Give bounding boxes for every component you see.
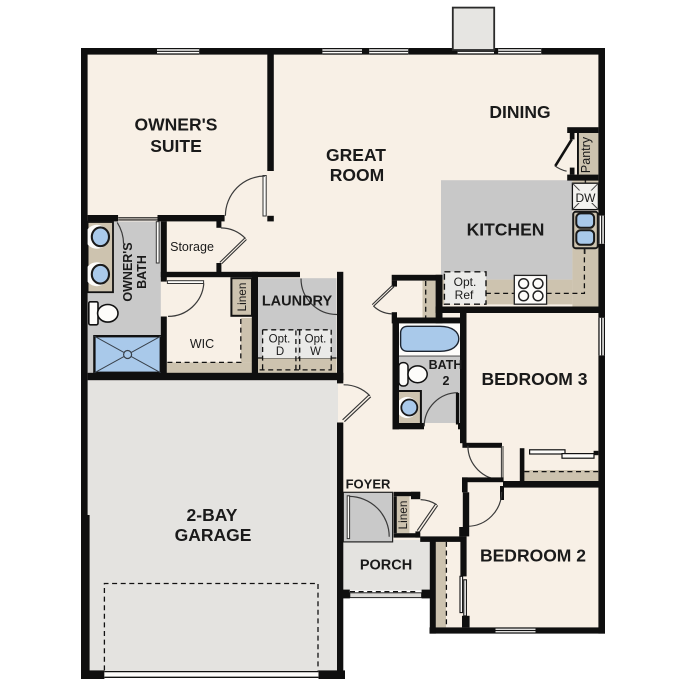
- svg-text:BATH: BATH: [429, 358, 463, 372]
- svg-text:Ref: Ref: [455, 288, 474, 302]
- svg-text:OWNER'S: OWNER'S: [121, 242, 135, 301]
- svg-text:GARAGE: GARAGE: [175, 525, 252, 545]
- svg-text:GREAT: GREAT: [326, 145, 386, 165]
- svg-text:D: D: [276, 346, 284, 358]
- svg-text:BATH: BATH: [135, 255, 149, 289]
- svg-text:SUITE: SUITE: [150, 136, 202, 156]
- svg-text:OWNER'S: OWNER'S: [135, 115, 218, 135]
- svg-text:FOYER: FOYER: [346, 477, 391, 492]
- svg-text:KITCHEN: KITCHEN: [467, 219, 545, 239]
- svg-text:Storage: Storage: [170, 240, 214, 254]
- svg-text:DW: DW: [576, 191, 597, 205]
- svg-text:2-BAY: 2-BAY: [187, 505, 238, 525]
- svg-text:ROOM: ROOM: [330, 165, 384, 185]
- svg-text:WIC: WIC: [190, 337, 214, 351]
- svg-text:Opt.: Opt.: [454, 275, 477, 289]
- svg-text:BEDROOM 3: BEDROOM 3: [482, 369, 588, 389]
- svg-text:Linen: Linen: [235, 283, 249, 312]
- svg-text:PORCH: PORCH: [360, 558, 412, 574]
- svg-text:DINING: DINING: [489, 102, 550, 122]
- svg-text:Opt.: Opt.: [305, 334, 327, 346]
- svg-text:Opt.: Opt.: [269, 334, 291, 346]
- svg-text:Pantry: Pantry: [579, 136, 593, 173]
- svg-text:W: W: [310, 346, 321, 358]
- svg-text:LAUNDRY: LAUNDRY: [262, 294, 333, 310]
- svg-text:2: 2: [443, 374, 450, 388]
- svg-text:Linen: Linen: [396, 501, 410, 530]
- svg-text:BEDROOM 2: BEDROOM 2: [480, 546, 586, 566]
